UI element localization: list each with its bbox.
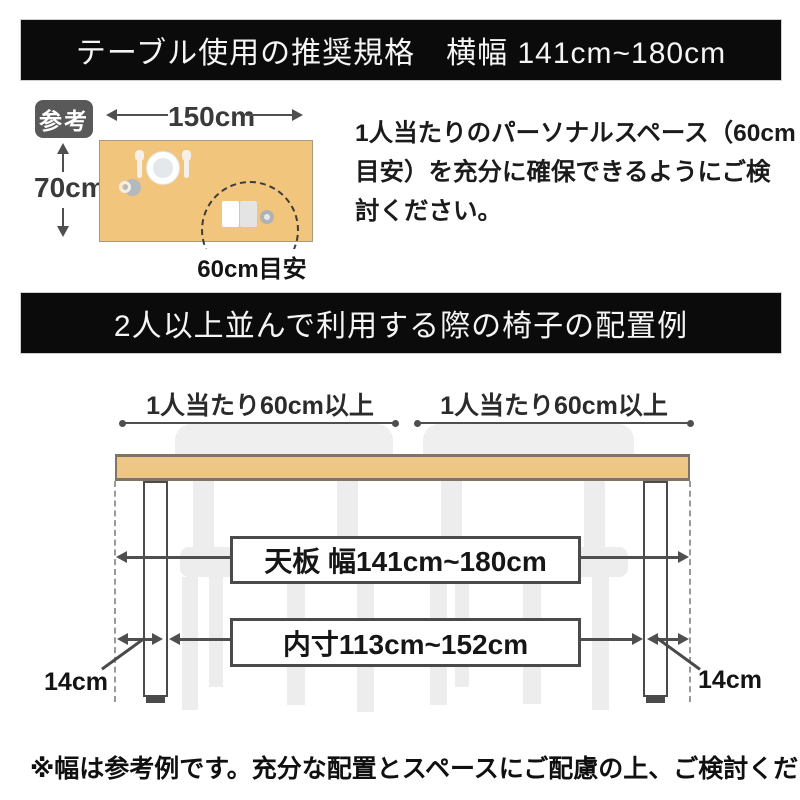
table-spec-infographic: テーブル使用の推奨規格 横幅 141cm~180cm 参考 150cm 70cm…: [0, 0, 800, 800]
small-cup-icon: [260, 210, 274, 224]
arrowhead-right-icon: [152, 633, 163, 645]
plate-icon: [146, 151, 180, 185]
leg-offset-label-left: 14cm: [42, 668, 110, 697]
per-person-label-left: 1人当たり60cm以上: [120, 386, 400, 422]
inner-width-label: 内寸113cm~152cm: [283, 623, 528, 663]
plate-inner: [153, 158, 173, 178]
dimension-line: [246, 114, 292, 116]
tabletop-width-label: 天板 幅141cm~180cm: [264, 540, 547, 580]
banner-chair-layout: 2人以上並んで利用する際の椅子の配置例: [20, 292, 782, 354]
measure-arrow-line: [575, 556, 679, 559]
measure-arrow-line: [179, 638, 230, 641]
inner-width-box: 内寸113cm~152cm: [230, 618, 581, 667]
dimension-line: [62, 154, 64, 172]
arrowhead-down-icon: [57, 226, 69, 237]
per-person-label-right: 1人当たり60cm以上: [414, 386, 694, 422]
leg-offset-label-right: 14cm: [694, 666, 766, 695]
note-line-2: 目安）を充分に確保できるようにご検: [355, 153, 796, 192]
tabletop-front-view: [115, 454, 690, 481]
reference-badge-label: 参考: [39, 102, 89, 136]
chair-leg: [209, 577, 223, 687]
chair-backrest-left: [175, 424, 393, 458]
small-cup-inner: [264, 214, 270, 220]
dimension-line: [115, 114, 168, 116]
personal-space-label: 60cm目安: [196, 249, 308, 284]
chair-leg: [182, 577, 198, 710]
fork-head: [135, 150, 144, 161]
table-leg-foot-right: [646, 697, 665, 703]
table-leg-left: [143, 481, 168, 697]
reference-depth-label: 70cm: [34, 172, 92, 204]
personal-space-note: 1人当たりのパーソナルスペース（60cm 目安）を充分に確保できるようにご検 討…: [355, 114, 796, 231]
tabletop-width-box: 天板 幅141cm~180cm: [230, 536, 581, 584]
chair-back-post: [584, 481, 605, 549]
table-leg-right: [643, 481, 668, 697]
footer-note: ※幅は参考例です。充分な配置とスペースにご配慮の上、ご検討ください。: [30, 749, 800, 785]
book-right-page-icon: [240, 201, 257, 227]
fork-icon: [137, 150, 142, 178]
table-leg-foot-left: [146, 697, 165, 703]
dimension-line: [62, 208, 64, 226]
book-left-page-icon: [222, 201, 239, 227]
measure-arrow-line: [575, 638, 633, 641]
reference-width-label: 150cm: [168, 101, 244, 133]
chair-backrest-right: [423, 424, 634, 458]
banner-chair-layout-title: 2人以上並んで利用する際の椅子の配置例: [114, 301, 688, 345]
arrowhead-right-icon: [678, 633, 689, 645]
arrowhead-right-icon: [292, 109, 303, 121]
cup-handle: [119, 181, 131, 193]
note-line-3: 討ください。: [355, 192, 796, 231]
banner-recommended-spec-title: テーブル使用の推奨規格 横幅 141cm~180cm: [76, 28, 726, 72]
chair-back-post: [193, 481, 214, 549]
measure-arrow-line: [126, 556, 230, 559]
edge-dashed-line-right: [689, 481, 691, 702]
banner-recommended-spec: テーブル使用の推奨規格 横幅 141cm~180cm: [20, 19, 782, 81]
edge-dashed-line-left: [114, 481, 116, 702]
note-line-1: 1人当たりのパーソナルスペース（60cm: [355, 114, 796, 153]
reference-badge: 参考: [35, 100, 93, 138]
chair-leg: [592, 577, 609, 710]
knife-head: [182, 150, 191, 161]
cup-icon: [124, 179, 141, 196]
arrowhead-up-icon: [57, 143, 69, 154]
arrowhead-right-icon: [632, 633, 643, 645]
knife-icon: [184, 150, 189, 178]
arrowhead-right-icon: [678, 551, 689, 563]
